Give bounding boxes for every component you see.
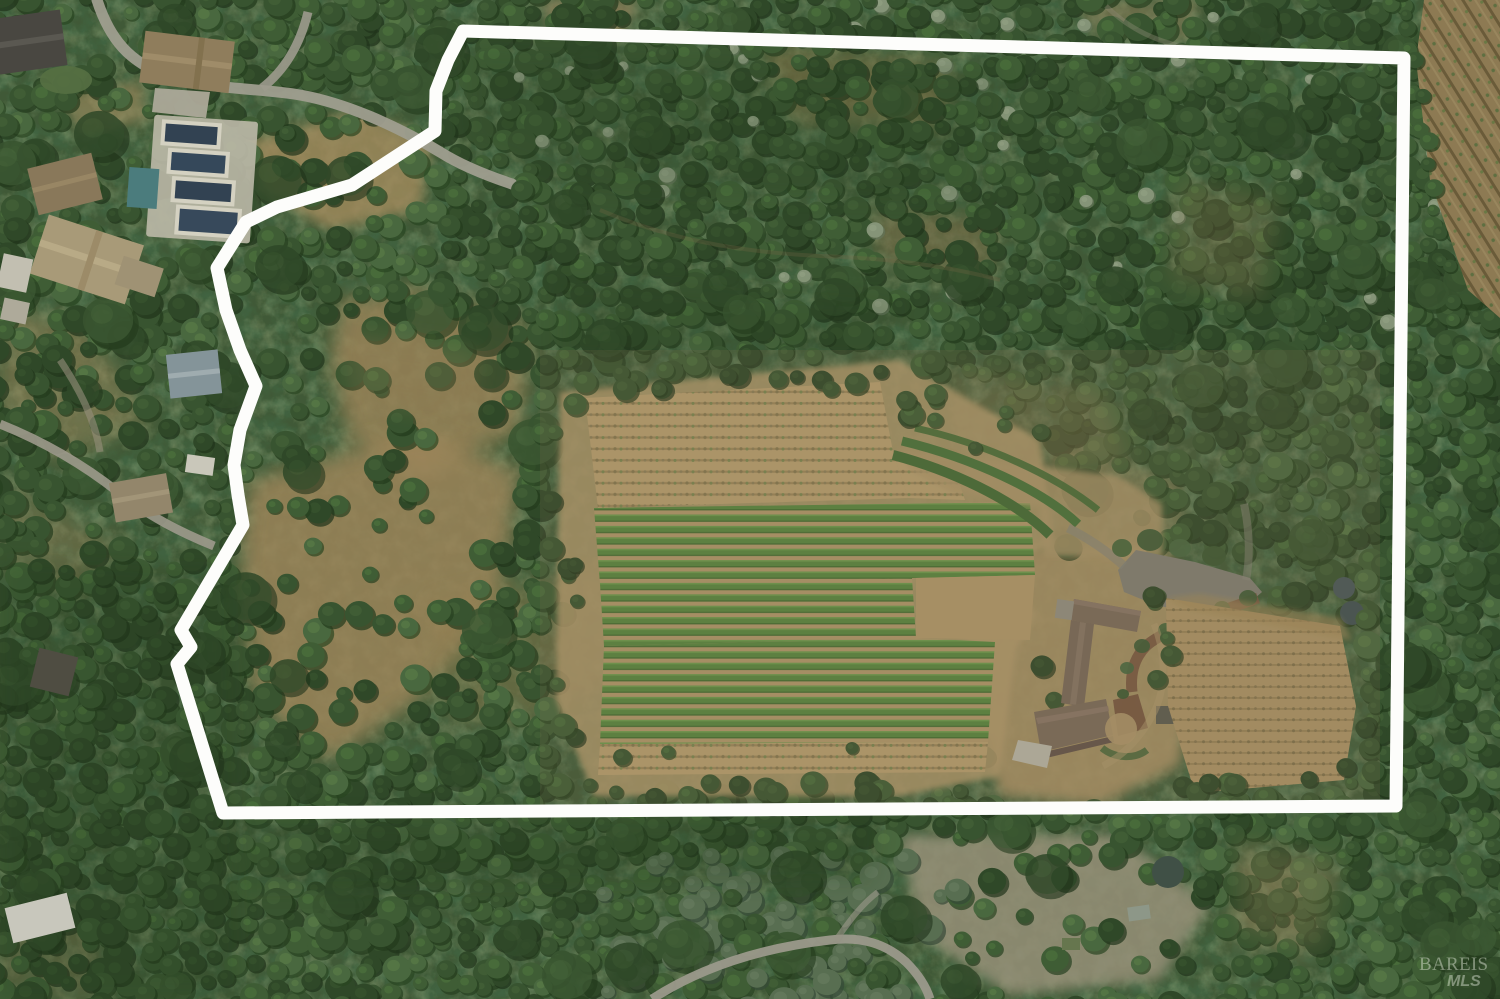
svg-text:MLS: MLS bbox=[1447, 973, 1481, 990]
svg-text:BAREIS: BAREIS bbox=[1419, 954, 1488, 975]
